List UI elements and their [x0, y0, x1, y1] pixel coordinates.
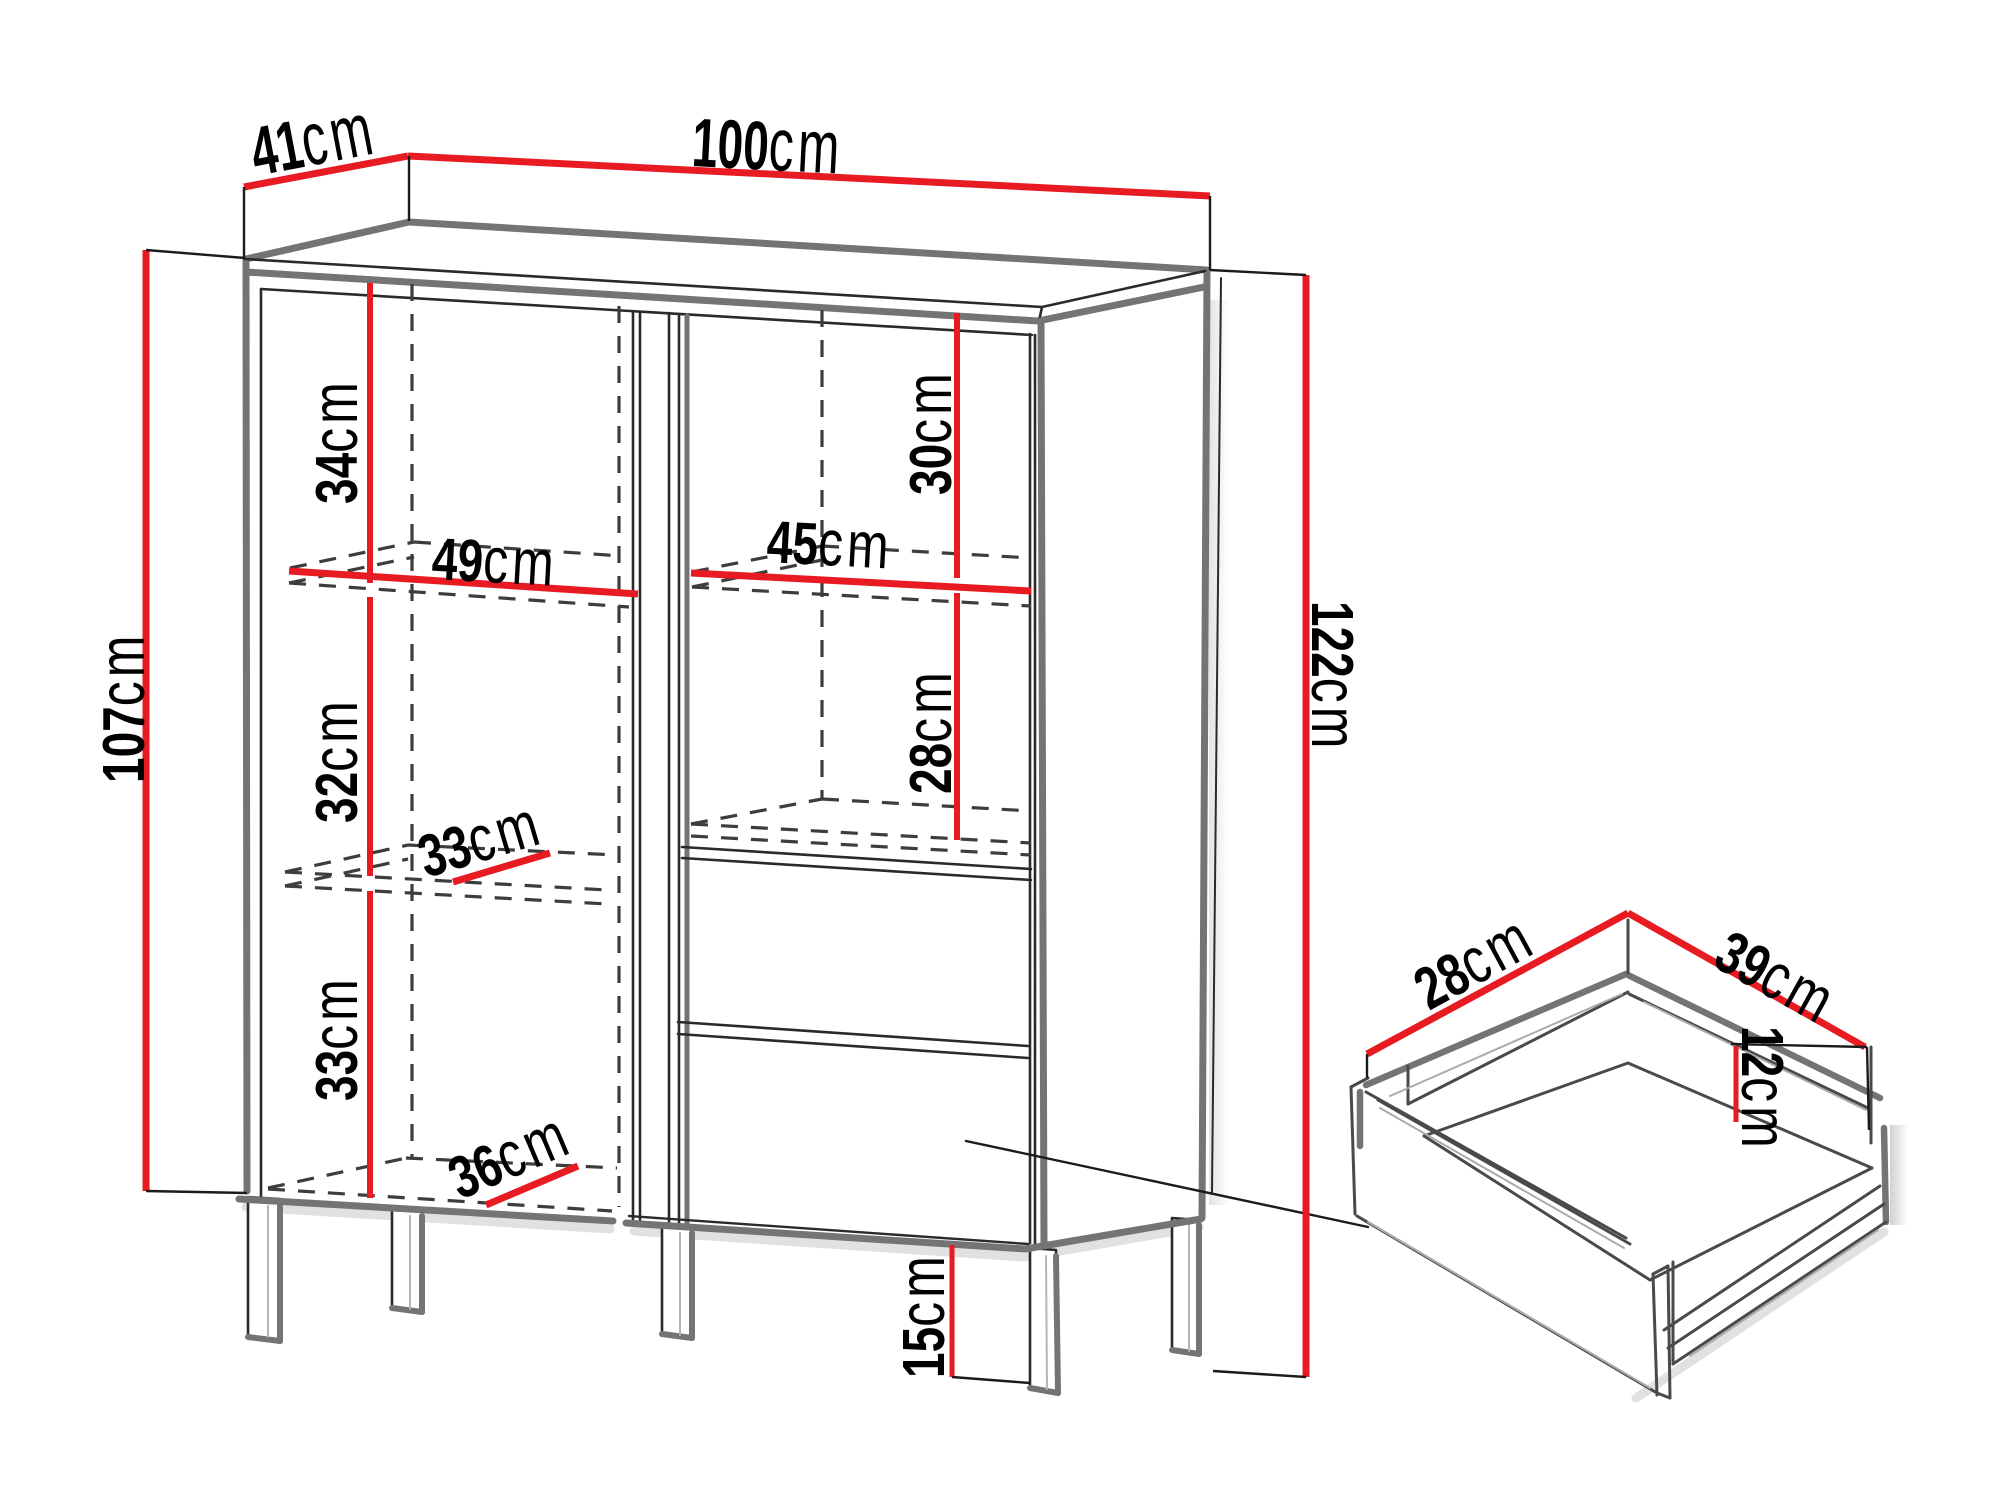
svg-text:49cm: 49cm [430, 522, 560, 601]
svg-text:45cm: 45cm [765, 505, 894, 583]
svg-text:12cm: 12cm [1727, 1026, 1799, 1152]
svg-text:33cm: 33cm [300, 975, 372, 1101]
svg-text:107cm: 107cm [87, 632, 159, 783]
svg-text:122cm: 122cm [1297, 601, 1369, 752]
svg-text:34cm: 34cm [300, 378, 372, 504]
svg-text:32cm: 32cm [300, 697, 372, 823]
svg-text:15cm: 15cm [887, 1252, 959, 1378]
svg-text:30cm: 30cm [894, 369, 966, 495]
svg-text:28cm: 28cm [894, 668, 966, 794]
svg-text:100cm: 100cm [690, 98, 845, 190]
